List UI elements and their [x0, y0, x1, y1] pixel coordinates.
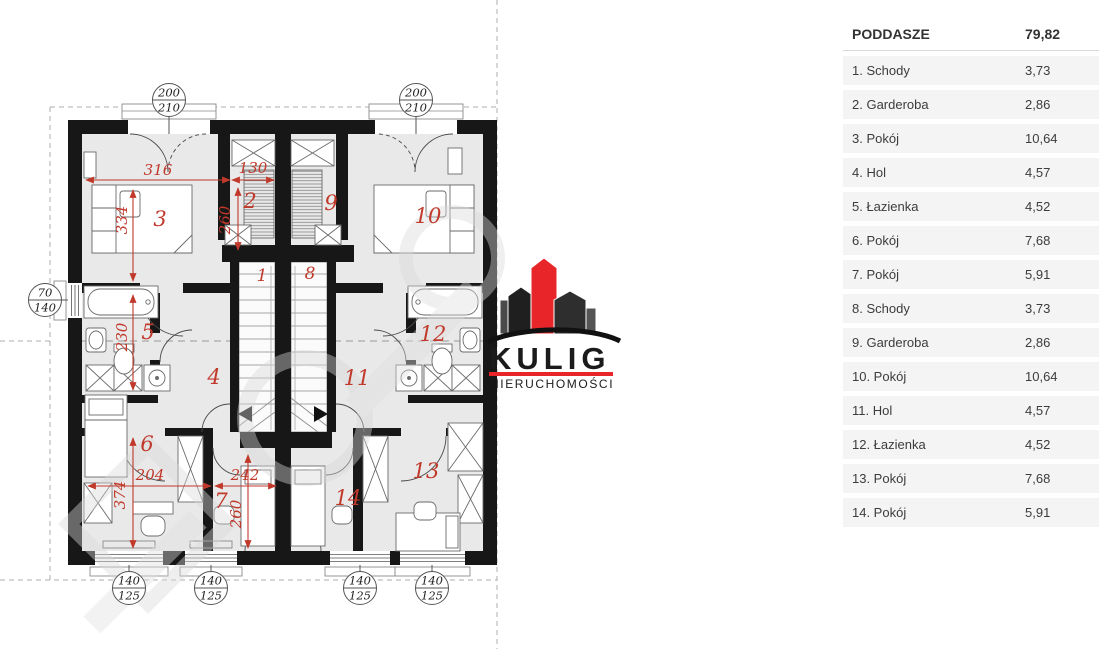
row-value: 5,91: [1025, 267, 1050, 282]
room-number-10: 10: [415, 204, 442, 228]
room-number-13: 13: [413, 459, 440, 483]
bubble-win3-top: 140: [349, 574, 371, 588]
table-row: 12. Łazienka 4,52: [843, 430, 1099, 459]
table-row: 10. Pokój 10,64: [843, 362, 1099, 391]
row-value: 5,91: [1025, 505, 1050, 520]
row-label: 3. Pokój: [843, 131, 1025, 146]
row-label: 14. Pokój: [843, 505, 1025, 520]
row-label: 9. Garderoba: [843, 335, 1025, 350]
dim-204: 204: [135, 466, 165, 484]
room-number-1: 1: [257, 266, 268, 286]
screenshot-root: 316 130 260 334 230 374 204 242 260 1 2 …: [0, 0, 1099, 649]
row-label: 5. Łazienka: [843, 199, 1025, 214]
room-number-5: 5: [141, 320, 154, 344]
room-number-3: 3: [153, 207, 166, 231]
room-number-9: 9: [324, 191, 337, 215]
room-number-4: 4: [206, 365, 220, 389]
floor-title: PODDASZE: [843, 26, 1025, 42]
logo-subtitle: NIERUCHOMOŚCI: [490, 376, 614, 391]
bubble-bath-window-top: 70: [38, 286, 53, 300]
bubble-door-right-bottom: 210: [404, 101, 427, 115]
table-row: 13. Pokój 7,68: [843, 464, 1099, 493]
bubble-win4-top: 140: [421, 574, 443, 588]
floor-plan: 316 130 260 334 230 374 204 242 260 1 2 …: [0, 0, 848, 649]
bubble-win4-bottom: 125: [421, 589, 443, 603]
table-row: 3. Pokój 10,64: [843, 124, 1099, 153]
dim-334: 334: [113, 206, 131, 235]
row-value: 3,73: [1025, 301, 1050, 316]
dim-130: 130: [239, 159, 268, 177]
row-value: 10,64: [1025, 131, 1058, 146]
room-number-12: 12: [420, 322, 447, 346]
bubble-win2-bottom: 125: [200, 589, 222, 603]
row-label: 12. Łazienka: [843, 437, 1025, 452]
table-row: 2. Garderoba 2,86: [843, 90, 1099, 119]
dim-260a: 260: [216, 205, 234, 235]
logo-wordmark: KULIG: [489, 341, 610, 376]
dim-242: 242: [230, 466, 260, 484]
table-row: 9. Garderoba 2,86: [843, 328, 1099, 357]
bubble-win3-bottom: 125: [349, 589, 371, 603]
table-row: 11. Hol 4,57: [843, 396, 1099, 425]
table-row: 6. Pokój 7,68: [843, 226, 1099, 255]
row-label: 7. Pokój: [843, 267, 1025, 282]
row-label: 6. Pokój: [843, 233, 1025, 248]
dim-230: 230: [113, 322, 131, 352]
floor-total-area: 79,82: [1025, 26, 1060, 42]
bubble-win1-top: 140: [118, 574, 140, 588]
room-number-14: 14: [335, 486, 362, 510]
logo-building-left: [508, 287, 534, 334]
bubble-win2-top: 140: [200, 574, 222, 588]
row-label: 2. Garderoba: [843, 97, 1025, 112]
dim-260b: 260: [227, 499, 245, 529]
bubble-door-right-top: 200: [404, 86, 427, 100]
row-label: 13. Pokój: [843, 471, 1025, 486]
table-row: 7. Pokój 5,91: [843, 260, 1099, 289]
row-value: 4,57: [1025, 403, 1050, 418]
row-label: 8. Schody: [843, 301, 1025, 316]
table-row: 14. Pokój 5,91: [843, 498, 1099, 527]
dim-374: 374: [111, 481, 129, 510]
room-number-2: 2: [242, 189, 256, 213]
room-number-8: 8: [305, 264, 316, 284]
bubble-door-left-bottom: 210: [157, 101, 180, 115]
row-label: 1. Schody: [843, 63, 1025, 78]
area-table: PODDASZE 79,82 1. Schody 3,73 2. Gardero…: [843, 18, 1099, 527]
row-value: 4,52: [1025, 199, 1050, 214]
table-row: 4. Hol 4,57: [843, 158, 1099, 187]
row-value: 4,57: [1025, 165, 1050, 180]
row-value: 10,64: [1025, 369, 1058, 384]
room-number-6: 6: [140, 432, 153, 456]
bubble-bath-window-bottom: 140: [34, 301, 56, 315]
row-label: 4. Hol: [843, 165, 1025, 180]
logo-building-red: [531, 258, 557, 334]
bubble-win1-bottom: 125: [118, 589, 140, 603]
row-value: 7,68: [1025, 233, 1050, 248]
table-row: 8. Schody 3,73: [843, 294, 1099, 323]
table-row: 5. Łazienka 4,52: [843, 192, 1099, 221]
bubble-door-left-top: 200: [157, 86, 180, 100]
row-value: 4,52: [1025, 437, 1050, 452]
row-value: 3,73: [1025, 63, 1050, 78]
row-value: 7,68: [1025, 471, 1050, 486]
room-number-7: 7: [214, 489, 228, 513]
area-table-header: PODDASZE 79,82: [843, 18, 1099, 51]
row-label: 10. Pokój: [843, 369, 1025, 384]
table-row: 1. Schody 3,73: [843, 56, 1099, 85]
room-number-11: 11: [344, 366, 371, 390]
logo-underline: [489, 372, 613, 376]
dim-316: 316: [144, 161, 173, 179]
kulig-logo: KULIG NIERUCHOMOŚCI: [488, 258, 620, 391]
row-value: 2,86: [1025, 335, 1050, 350]
row-label: 11. Hol: [843, 403, 1025, 418]
row-value: 2,86: [1025, 97, 1050, 112]
